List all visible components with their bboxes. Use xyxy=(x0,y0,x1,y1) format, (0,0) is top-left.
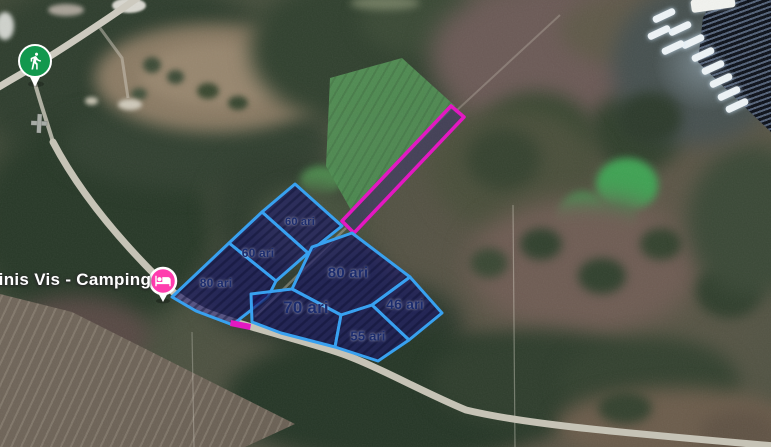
parcel-label-80-left: 80 ari xyxy=(200,276,233,290)
parcel-label-60-top: 60 ari xyxy=(285,216,315,228)
camping-place-label[interactable]: ninis Vis - Camping xyxy=(0,270,151,290)
parcel-label-80-center: 80 ari xyxy=(328,265,368,282)
parcel-label-46: 46 ari xyxy=(386,296,424,312)
parcel-label-60-mid: 60 ari xyxy=(242,246,275,260)
parcel-label-70: 70 ari xyxy=(283,298,329,318)
trailhead-pin[interactable] xyxy=(14,40,58,90)
camping-pin[interactable] xyxy=(146,264,182,306)
parcel-label-55: 55 ari xyxy=(350,329,385,344)
satellite-map[interactable]: 60 ari60 ari80 ari80 ari70 ari46 ari55 a… xyxy=(0,0,771,447)
parcel-labels: 60 ari60 ari80 ari80 ari70 ari46 ari55 a… xyxy=(0,0,771,447)
